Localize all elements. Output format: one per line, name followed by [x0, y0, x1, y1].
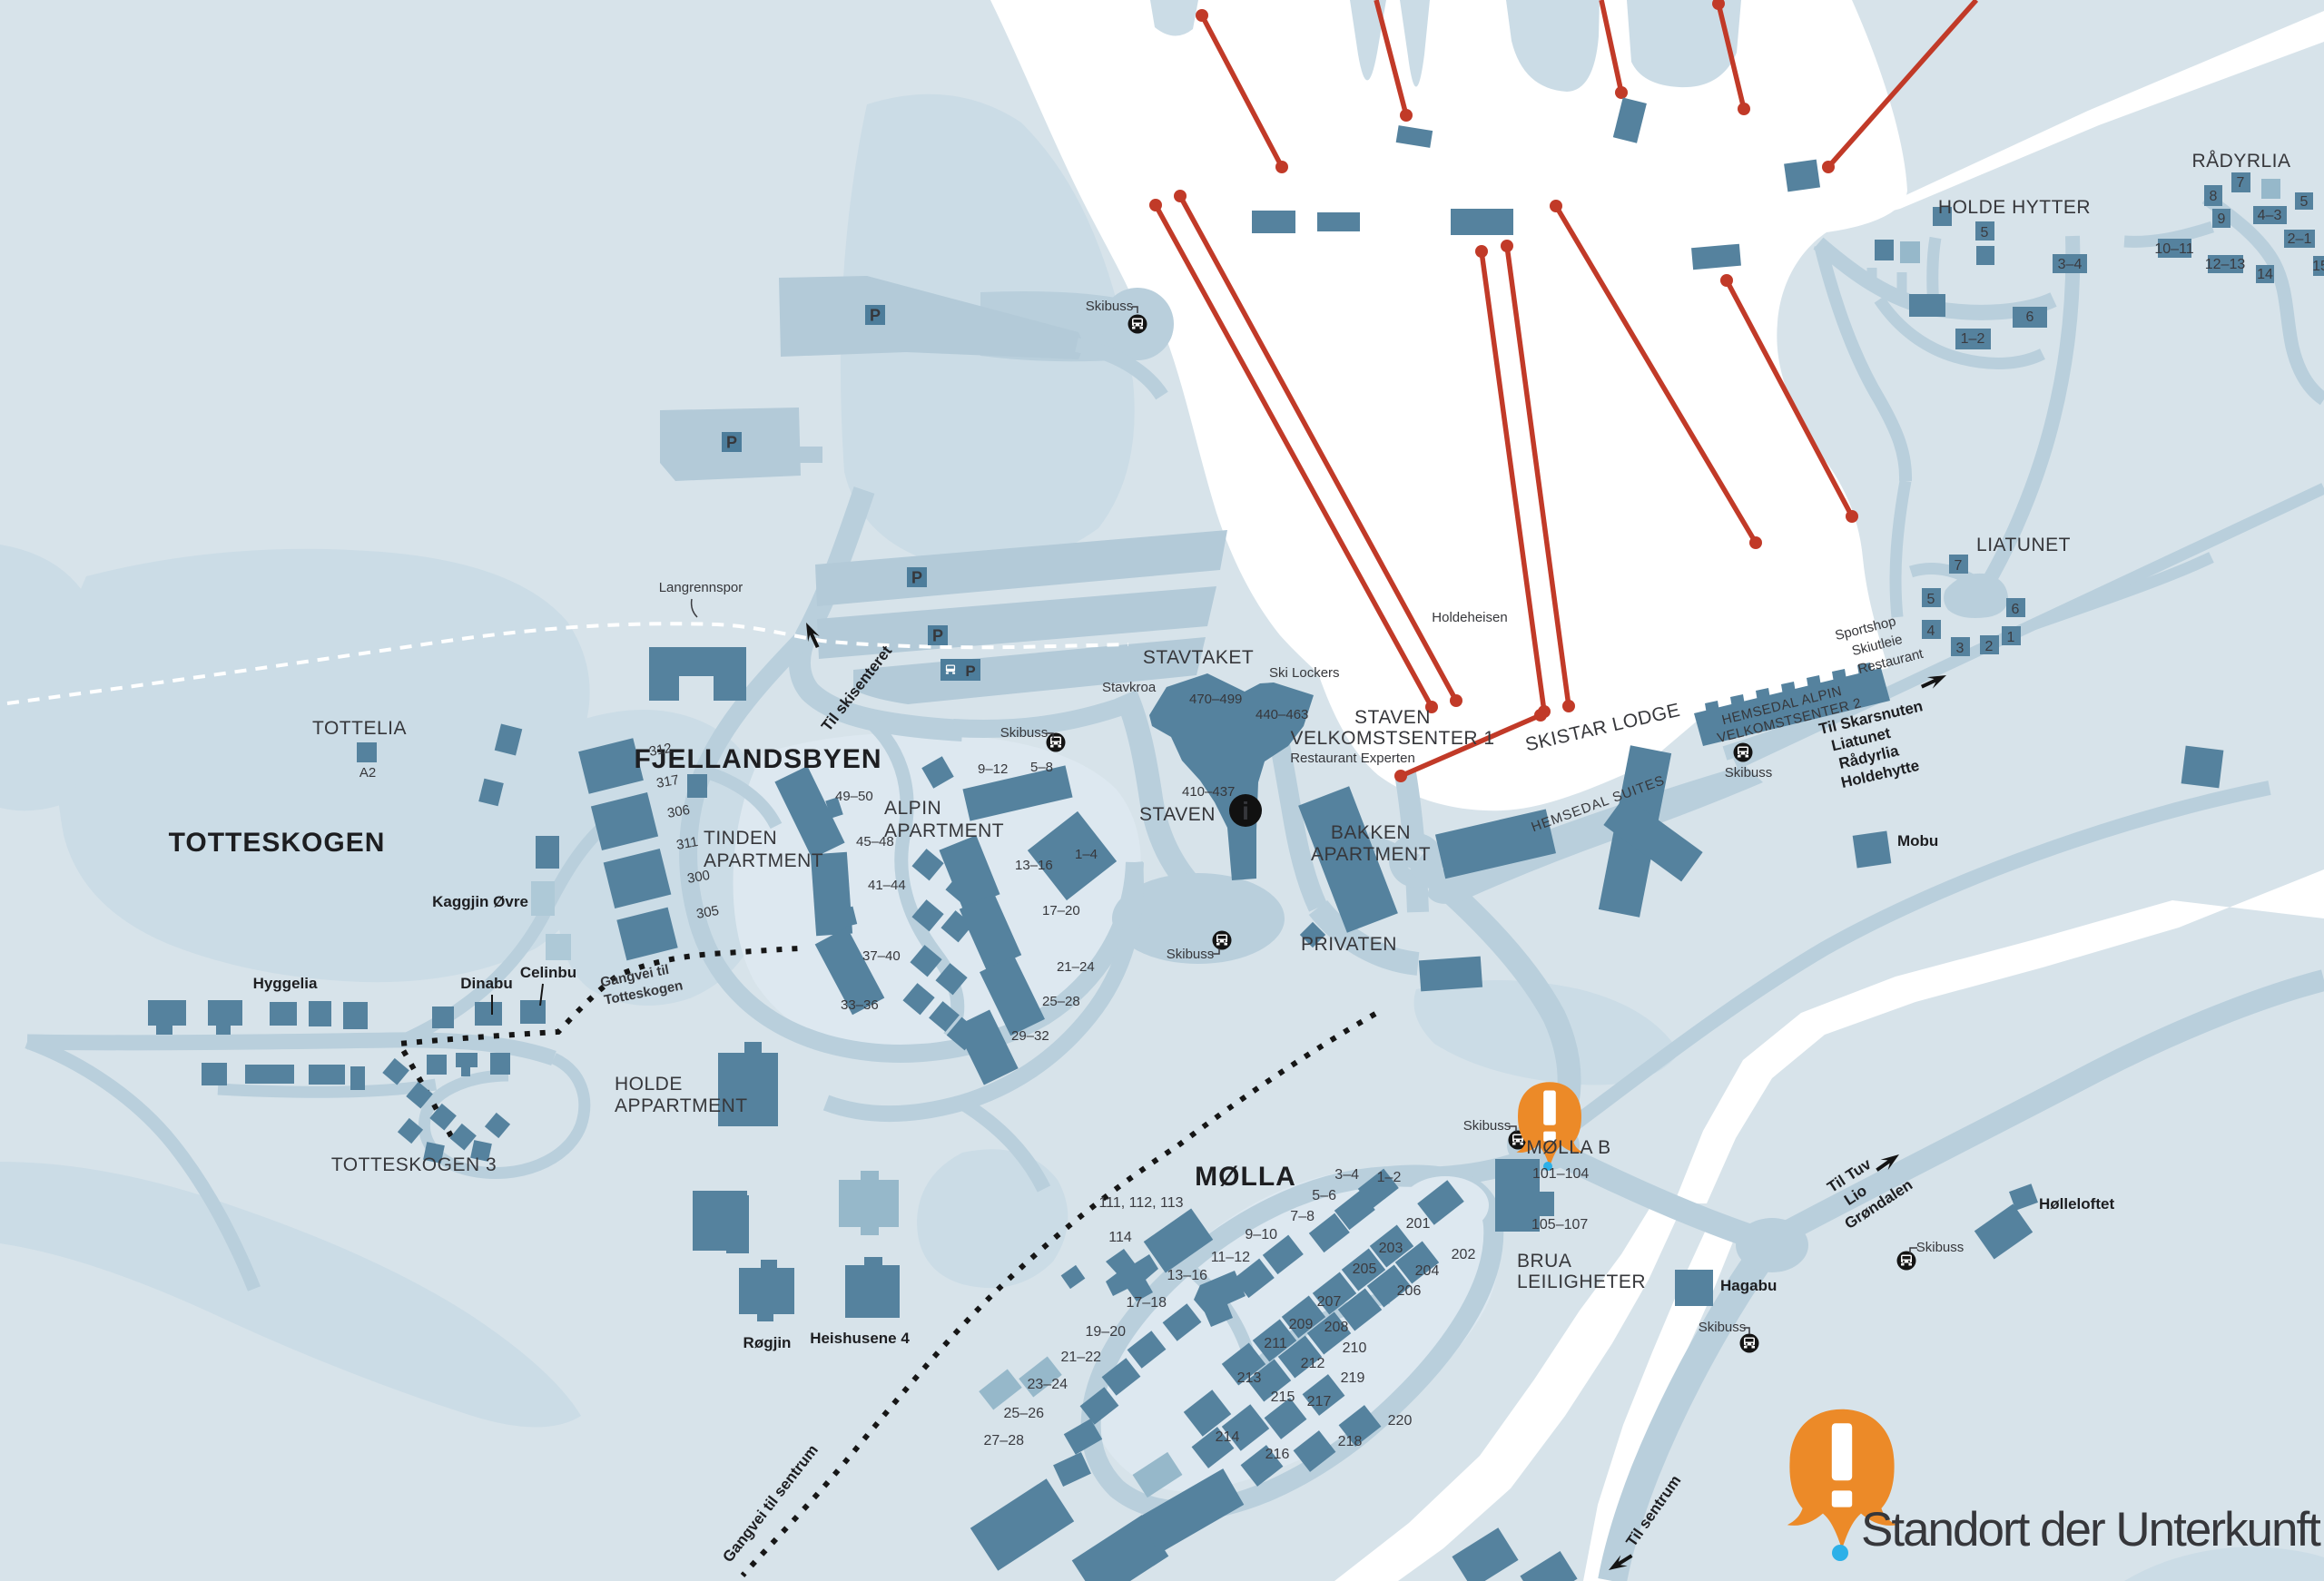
svg-text:23–24: 23–24 — [1028, 1377, 1068, 1392]
svg-text:Skibuss: Skibuss — [1167, 947, 1215, 962]
svg-text:Kaggjin Øvre: Kaggjin Øvre — [432, 893, 528, 910]
svg-text:206: 206 — [1397, 1283, 1422, 1299]
svg-text:Skibuss: Skibuss — [1463, 1118, 1512, 1134]
svg-text:Langrennspor: Langrennspor — [659, 580, 743, 595]
svg-text:2: 2 — [1985, 639, 1994, 654]
svg-text:Skibuss: Skibuss — [1086, 299, 1134, 314]
svg-text:19–20: 19–20 — [1086, 1324, 1127, 1340]
svg-text:13–16: 13–16 — [1167, 1268, 1208, 1283]
svg-text:Dinabu: Dinabu — [460, 975, 513, 992]
svg-text:210: 210 — [1343, 1340, 1367, 1356]
svg-text:45–48: 45–48 — [856, 834, 894, 849]
svg-text:Ski Lockers: Ski Lockers — [1269, 665, 1340, 681]
svg-text:TOTTESKOGEN: TOTTESKOGEN — [169, 828, 386, 858]
svg-text:21–22: 21–22 — [1061, 1350, 1102, 1365]
svg-text:Holdeheisen: Holdeheisen — [1432, 610, 1507, 625]
svg-text:201: 201 — [1406, 1216, 1431, 1232]
svg-text:216: 216 — [1265, 1447, 1290, 1462]
svg-text:29–32: 29–32 — [1011, 1028, 1049, 1044]
svg-text:214: 214 — [1216, 1429, 1240, 1445]
svg-text:STAVTAKET: STAVTAKET — [1143, 647, 1254, 668]
svg-text:Stavkroa: Stavkroa — [1102, 680, 1157, 695]
svg-text:207: 207 — [1317, 1294, 1342, 1310]
svg-text:21–24: 21–24 — [1057, 959, 1095, 975]
svg-text:TINDEN: TINDEN — [704, 828, 777, 849]
svg-text:PRIVATEN: PRIVATEN — [1301, 934, 1397, 955]
svg-text:17–20: 17–20 — [1042, 903, 1080, 918]
svg-text:P: P — [965, 663, 975, 680]
svg-text:7–8: 7–8 — [1290, 1209, 1315, 1224]
svg-text:APARTMENT: APARTMENT — [1311, 844, 1431, 865]
svg-text:Celinbu: Celinbu — [520, 964, 576, 981]
svg-text:14: 14 — [2257, 267, 2273, 282]
svg-text:10–11: 10–11 — [2154, 241, 2193, 257]
svg-text:1–4: 1–4 — [1075, 847, 1098, 862]
svg-text:202: 202 — [1452, 1247, 1476, 1262]
svg-text:217: 217 — [1307, 1394, 1332, 1409]
svg-text:49–50: 49–50 — [835, 789, 873, 804]
svg-text:APARTMENT: APARTMENT — [884, 820, 1004, 841]
svg-text:15: 15 — [2312, 259, 2324, 274]
svg-text:HOLDE HYTTER: HOLDE HYTTER — [1938, 197, 2091, 218]
svg-text:BAKKEN: BAKKEN — [1331, 822, 1411, 843]
svg-text:BRUA: BRUA — [1517, 1251, 1571, 1272]
svg-text:9: 9 — [2218, 211, 2226, 227]
svg-text:STAVEN: STAVEN — [1139, 804, 1216, 825]
svg-text:3: 3 — [1956, 641, 1965, 656]
svg-text:440–463: 440–463 — [1256, 707, 1308, 722]
svg-text:37–40: 37–40 — [862, 948, 901, 964]
svg-text:111, 112, 113: 111, 112, 113 — [1098, 1195, 1183, 1211]
svg-text:TOTTESKOGEN 3: TOTTESKOGEN 3 — [331, 1154, 497, 1175]
svg-text:MØLLA B: MØLLA B — [1526, 1137, 1610, 1158]
svg-text:5: 5 — [2300, 194, 2309, 210]
svg-text:219: 219 — [1341, 1370, 1365, 1386]
svg-text:TOTTELIA: TOTTELIA — [312, 718, 407, 739]
svg-text:218: 218 — [1338, 1434, 1363, 1449]
svg-text:1: 1 — [2007, 630, 2015, 645]
svg-text:41–44: 41–44 — [868, 878, 906, 893]
svg-text:27–28: 27–28 — [984, 1433, 1025, 1448]
svg-text:4–3: 4–3 — [2258, 208, 2282, 223]
svg-text:101–104: 101–104 — [1532, 1166, 1589, 1182]
svg-text:6: 6 — [2026, 309, 2034, 325]
svg-text:6: 6 — [2012, 602, 2020, 617]
svg-text:3–4: 3–4 — [1334, 1167, 1359, 1183]
svg-text:5–8: 5–8 — [1030, 760, 1053, 775]
svg-text:7: 7 — [2237, 175, 2245, 191]
svg-text:Skibuss: Skibuss — [1000, 725, 1049, 741]
svg-text:i: i — [1242, 797, 1249, 825]
svg-text:7: 7 — [1955, 558, 1963, 574]
svg-text:Skibuss: Skibuss — [1725, 765, 1773, 781]
svg-text:211: 211 — [1264, 1336, 1287, 1351]
svg-text:A2: A2 — [359, 765, 376, 781]
svg-text:470–499: 470–499 — [1189, 692, 1242, 707]
svg-text:VELKOMSTSENTER 1: VELKOMSTSENTER 1 — [1290, 728, 1494, 749]
svg-text:9–12: 9–12 — [978, 761, 1008, 777]
svg-text:Restaurant Experten: Restaurant Experten — [1290, 751, 1415, 766]
svg-text:13–16: 13–16 — [1015, 858, 1053, 873]
svg-text:25–26: 25–26 — [1004, 1406, 1045, 1421]
svg-text:8: 8 — [2210, 189, 2218, 204]
svg-text:5: 5 — [1981, 225, 1989, 241]
svg-text:RÅDYRLIA: RÅDYRLIA — [2191, 151, 2290, 172]
svg-text:25–28: 25–28 — [1042, 994, 1080, 1009]
svg-text:33–36: 33–36 — [841, 997, 879, 1013]
svg-text:410–437: 410–437 — [1182, 784, 1235, 800]
svg-text:LEILIGHETER: LEILIGHETER — [1517, 1272, 1646, 1292]
svg-text:Hølleloftet: Hølleloftet — [2039, 1195, 2114, 1213]
svg-text:LIATUNET: LIATUNET — [1976, 535, 2071, 555]
svg-text:17–18: 17–18 — [1127, 1295, 1167, 1311]
svg-text:3–4: 3–4 — [2058, 257, 2083, 272]
svg-text:203: 203 — [1379, 1241, 1403, 1256]
svg-text:220: 220 — [1388, 1413, 1413, 1429]
svg-text:APARTMENT: APARTMENT — [704, 850, 823, 871]
svg-text:2–1: 2–1 — [2288, 231, 2312, 247]
svg-text:Skibuss: Skibuss — [1916, 1240, 1965, 1255]
svg-text:Heishusene 4: Heishusene 4 — [810, 1330, 910, 1347]
svg-text:11–12: 11–12 — [1211, 1250, 1250, 1265]
svg-text:212: 212 — [1301, 1356, 1325, 1371]
svg-text:12–13: 12–13 — [2205, 257, 2246, 272]
svg-text:208: 208 — [1324, 1320, 1349, 1335]
svg-text:1–2: 1–2 — [1377, 1170, 1402, 1185]
svg-text:Røgjin: Røgjin — [743, 1334, 792, 1351]
svg-text:Standort der Unterkunft: Standort der Unterkunft — [1861, 1503, 2321, 1556]
svg-text:Mobu: Mobu — [1897, 832, 1938, 849]
svg-text:209: 209 — [1289, 1317, 1314, 1332]
svg-text:ALPIN: ALPIN — [884, 798, 941, 819]
svg-text:9–10: 9–10 — [1245, 1227, 1277, 1242]
svg-text:HOLDE: HOLDE — [615, 1074, 683, 1095]
svg-text:MØLLA: MØLLA — [1195, 1162, 1296, 1192]
svg-text:Hyggelia: Hyggelia — [253, 975, 318, 992]
svg-text:105–107: 105–107 — [1531, 1217, 1588, 1232]
svg-text:213: 213 — [1237, 1370, 1262, 1386]
svg-text:1–2: 1–2 — [1961, 331, 1985, 347]
svg-text:205: 205 — [1353, 1262, 1377, 1277]
svg-text:APPARTMENT: APPARTMENT — [615, 1095, 748, 1116]
svg-text:5–6: 5–6 — [1312, 1188, 1336, 1203]
svg-text:215: 215 — [1271, 1390, 1295, 1405]
svg-text:Hagabu: Hagabu — [1720, 1277, 1777, 1294]
svg-text:4: 4 — [1927, 624, 1935, 639]
svg-text:STAVEN: STAVEN — [1354, 707, 1431, 728]
svg-text:204: 204 — [1415, 1263, 1440, 1279]
svg-text:5: 5 — [1927, 592, 1935, 607]
svg-text:114: 114 — [1108, 1230, 1132, 1245]
svg-text:Skibuss: Skibuss — [1699, 1320, 1747, 1335]
